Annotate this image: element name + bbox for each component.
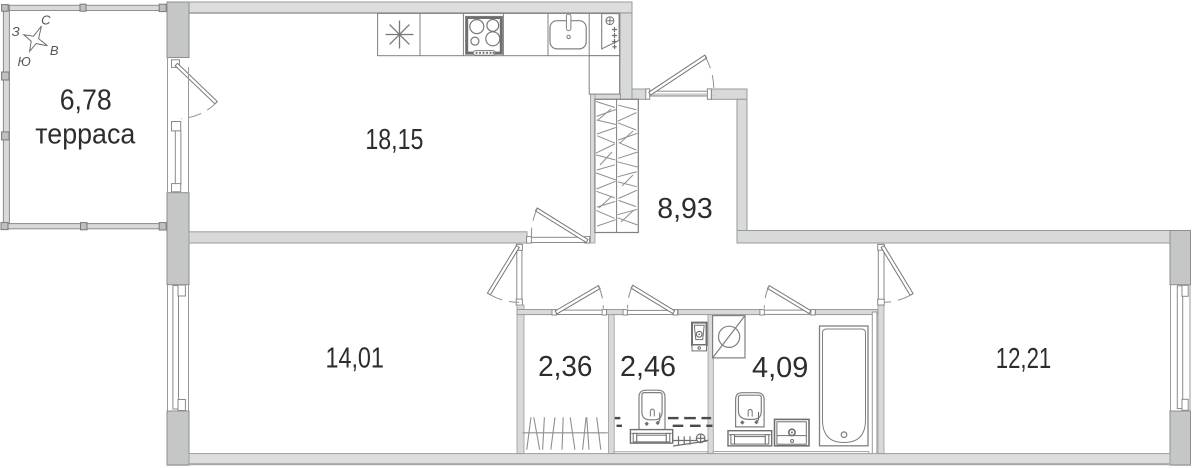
svg-text:14,01: 14,01 <box>325 343 384 375</box>
svg-text:терраса: терраса <box>35 119 136 151</box>
svg-text:В: В <box>50 43 59 58</box>
svg-text:18,15: 18,15 <box>365 124 423 156</box>
svg-text:2,36: 2,36 <box>538 351 592 383</box>
svg-text:З: З <box>12 24 20 39</box>
svg-text:4,09: 4,09 <box>752 352 808 384</box>
svg-text:8,93: 8,93 <box>657 193 713 225</box>
svg-text:С: С <box>41 13 51 28</box>
svg-text:6,78: 6,78 <box>60 85 112 117</box>
svg-text:2,46: 2,46 <box>620 351 676 383</box>
svg-text:12,21: 12,21 <box>996 343 1052 375</box>
svg-text:Ю: Ю <box>18 54 31 69</box>
